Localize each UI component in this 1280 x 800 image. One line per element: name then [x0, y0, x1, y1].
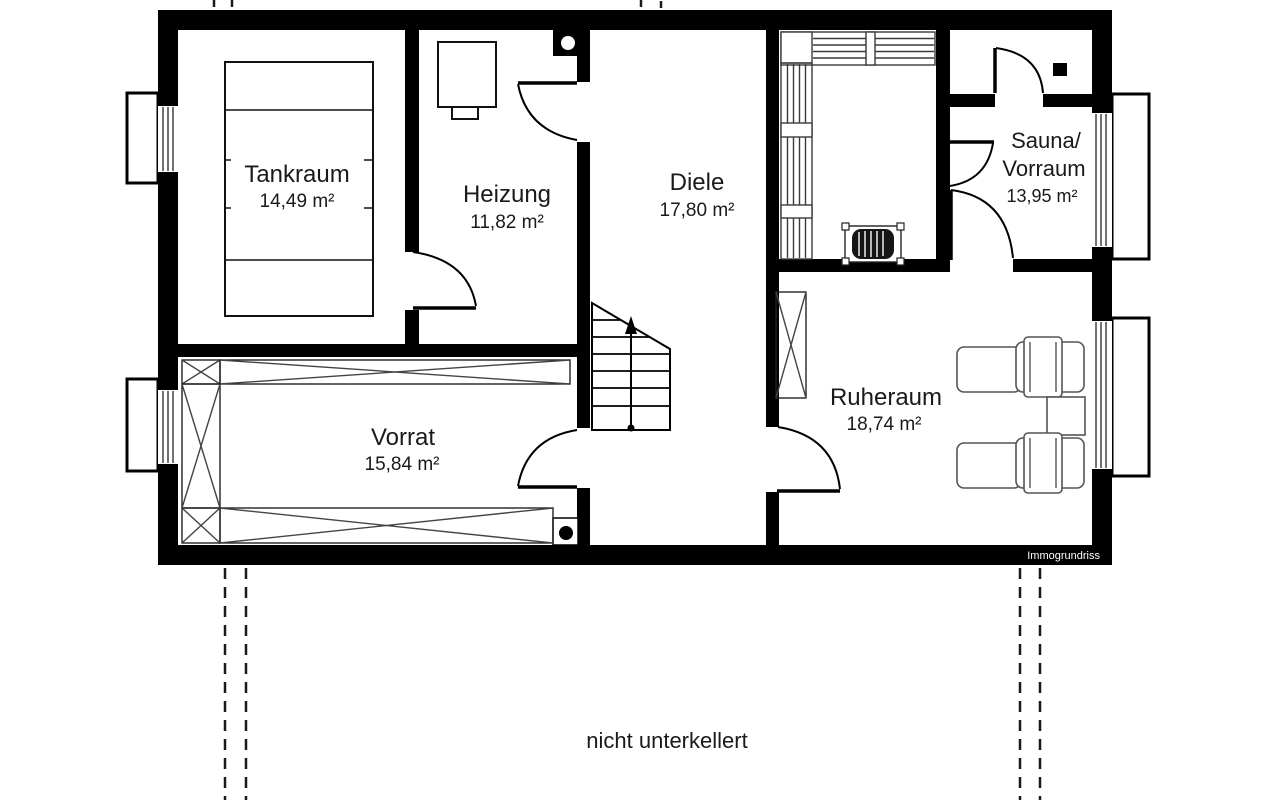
door-vorraum-ruheraum: [951, 190, 1013, 260]
window-left-top: [158, 106, 178, 172]
floorplan-basement: Tankraum 14,49 m² Heizung 11,82 m² Diele…: [0, 0, 1280, 800]
room-name-line1: Sauna/: [1011, 128, 1082, 153]
label-sauna-vorraum: Sauna/ Vorraum 13,95 m²: [1002, 128, 1085, 206]
window-left-bottom: [158, 390, 178, 464]
door-vorrat-diele: [518, 430, 577, 487]
lightwell-right-bottom: [1112, 318, 1149, 476]
lightwell-left-top: [127, 93, 158, 183]
room-name: Tankraum: [244, 161, 349, 188]
door-vorraum-sauna: [950, 142, 994, 186]
window-right-bottom: [1092, 321, 1112, 469]
label-diele: Diele 17,80 m²: [660, 169, 735, 221]
room-area: 15,84 m²: [365, 454, 440, 475]
label-heizung: Heizung 11,82 m²: [463, 181, 551, 233]
shelf-ruheraum: [776, 292, 806, 398]
label-tankraum: Tankraum 14,49 m²: [244, 161, 349, 212]
annotation-nicht-unterkellert: nicht unterkellert: [586, 728, 747, 753]
room-area: 18,74 m²: [847, 414, 922, 435]
door-tankraum-heizung: [413, 252, 476, 308]
window-right-top: [1092, 113, 1112, 247]
room-area: 17,80 m²: [660, 200, 735, 221]
lightwell-left-bottom: [127, 379, 158, 471]
interior-walls: [178, 30, 1092, 545]
sauna-heater: [842, 223, 904, 265]
door-heizung-diele: [518, 83, 577, 140]
chimney-top-symbol: [553, 30, 583, 56]
chimney-bottom-symbol: [553, 518, 578, 545]
sauna-bench-top: [781, 32, 935, 65]
room-area: 13,95 m²: [1006, 186, 1077, 206]
storage-shelves-vorrat: [182, 360, 570, 543]
watermark-immogrundriss: Immogrundriss: [1027, 550, 1100, 562]
room-name: Diele: [670, 169, 725, 196]
lounger-bottom: [957, 433, 1084, 493]
oil-tank: [225, 62, 373, 316]
staircase: [592, 303, 670, 432]
lounger-top: [957, 337, 1084, 397]
room-name: Ruheraum: [830, 384, 942, 411]
room-name-line2: Vorraum: [1002, 156, 1085, 181]
boiler: [438, 42, 496, 119]
room-area: 11,82 m²: [470, 212, 544, 233]
drain-symbol: [1053, 63, 1067, 76]
door-diele-ruheraum: [777, 427, 840, 491]
room-name: Vorrat: [371, 424, 435, 451]
label-ruheraum: Ruheraum 18,74 m²: [830, 384, 942, 435]
room-area: 14,49 m²: [260, 191, 335, 212]
side-table: [1047, 397, 1085, 435]
label-vorrat: Vorrat 15,84 m²: [365, 424, 440, 475]
section-dashed-lines: [225, 568, 1040, 800]
door-vorraum-closet: [995, 48, 1043, 93]
floorplan-canvas: Tankraum 14,49 m² Heizung 11,82 m² Diele…: [0, 0, 1280, 800]
room-name: Heizung: [463, 181, 551, 208]
lightwell-right-top: [1112, 94, 1149, 259]
sauna-bench-left: [781, 63, 812, 259]
